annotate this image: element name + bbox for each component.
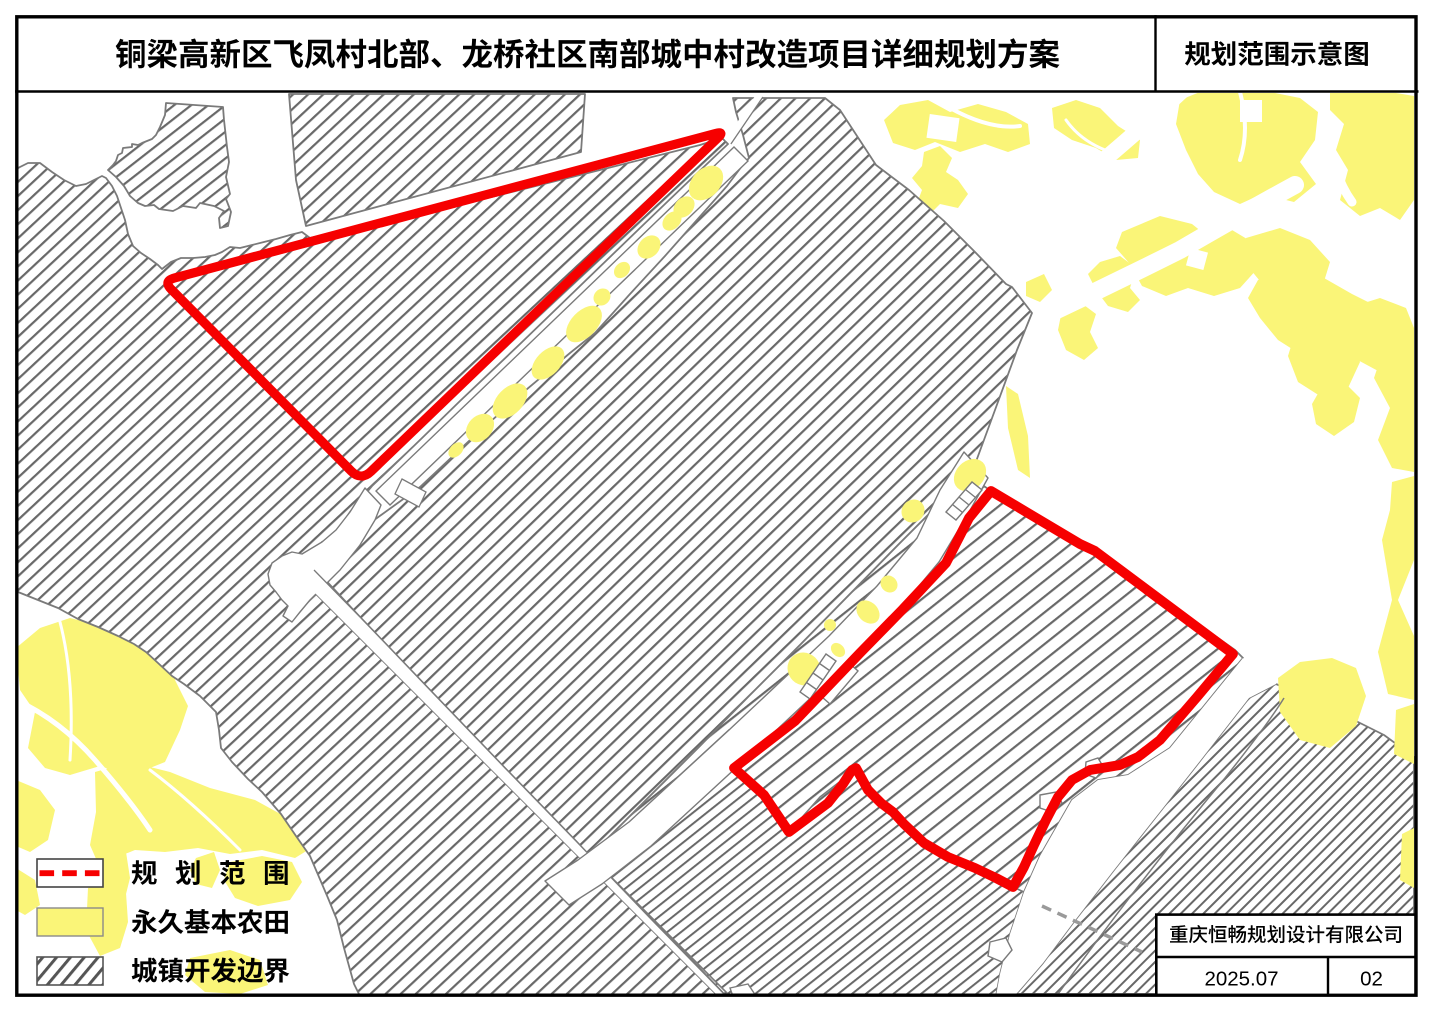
svg-text:2025.07: 2025.07 [1204,968,1278,991]
svg-text:02: 02 [1360,968,1383,991]
